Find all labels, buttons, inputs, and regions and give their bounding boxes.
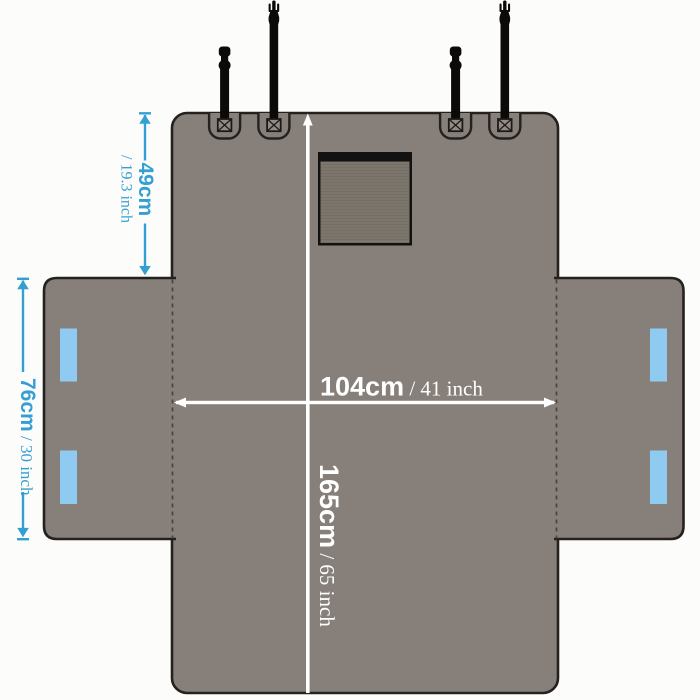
svg-text:49cm: 49cm xyxy=(134,163,157,217)
svg-text:/ 19.3 inch: / 19.3 inch xyxy=(118,155,135,223)
svg-text:165cm / 65 inch: 165cm / 65 inch xyxy=(314,464,344,627)
svg-text:76cm / 30 inch: 76cm / 30 inch xyxy=(16,378,39,496)
svg-text:104cm / 41 inch: 104cm / 41 inch xyxy=(320,372,483,402)
